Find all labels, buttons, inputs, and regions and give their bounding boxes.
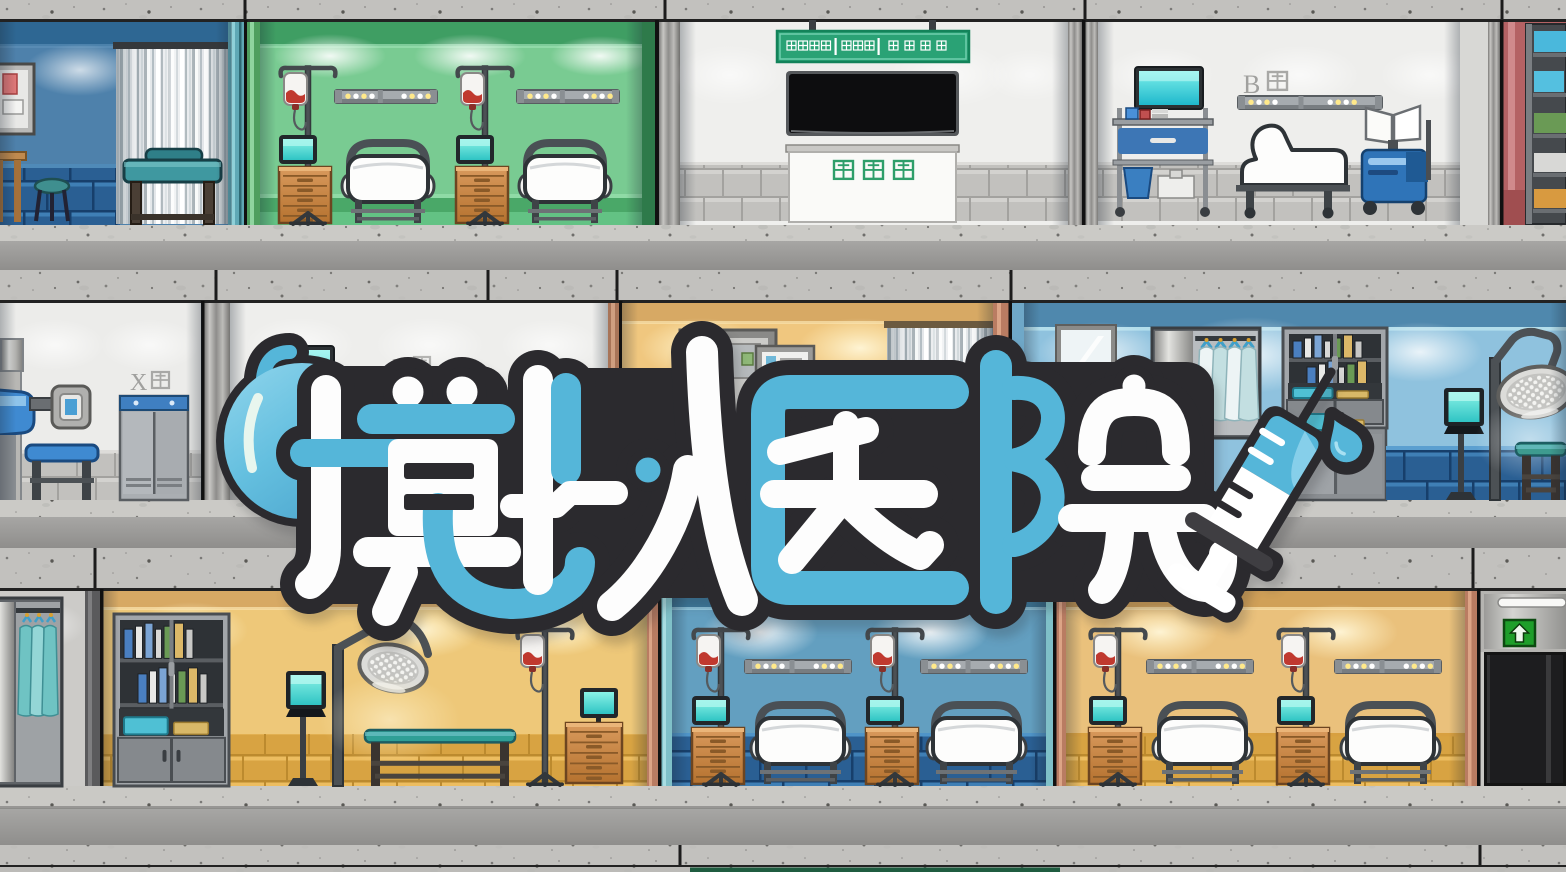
- svg-text:B: B: [1243, 70, 1260, 99]
- svg-text:X: X: [130, 370, 147, 396]
